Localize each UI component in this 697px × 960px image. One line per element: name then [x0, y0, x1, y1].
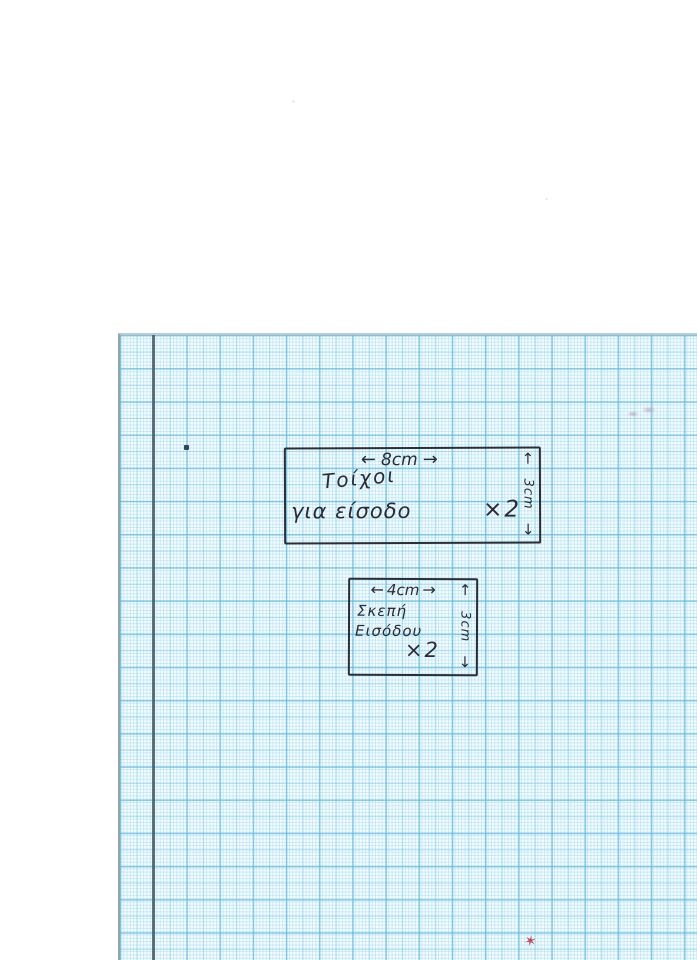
red-asterisk-mark: ✶	[522, 931, 538, 951]
height-dimension: ↑ 3cm ↓	[457, 583, 473, 670]
scan-speck	[545, 198, 548, 200]
sketch-label-line1: Σκεπή	[357, 602, 407, 620]
arrow-up-icon: ↑	[522, 452, 535, 467]
sketch-label-line2: για είσοδο	[291, 499, 411, 523]
scan-speck	[292, 100, 295, 103]
quantity-label: ×2	[405, 638, 440, 662]
width-dimension: ← 4cm →	[350, 581, 456, 599]
arrow-down-icon: ↓	[522, 523, 535, 538]
graph-paper: ✶ ← 8cm → ↑ 3cm ↓ Τοίχοι για είσοδο ×2 ←…	[118, 333, 697, 960]
margin-line	[152, 335, 155, 960]
sketch-rect-roof: ← 4cm → ↑ 3cm ↓ Σκεπή Εισόδου ×2	[348, 578, 478, 676]
arrow-right-icon: →	[423, 451, 438, 469]
height-dimension: ↑ 3cm ↓	[520, 452, 536, 538]
arrow-down-icon: ↓	[459, 655, 472, 670]
width-dimension-label: 4cm	[387, 581, 419, 599]
pink-smudge	[625, 405, 659, 419]
quantity-label: ×2	[483, 497, 521, 523]
height-dimension-label: 3cm	[457, 611, 472, 642]
arrow-up-icon: ↑	[459, 583, 472, 598]
sketch-rect-walls: ← 8cm → ↑ 3cm ↓ Τοίχοι για είσοδο ×2	[284, 447, 541, 545]
ink-dot	[184, 445, 189, 450]
scanned-page: ✶ ← 8cm → ↑ 3cm ↓ Τοίχοι για είσοδο ×2 ←…	[0, 0, 697, 960]
arrow-left-icon: ←	[370, 582, 383, 598]
width-dimension: ← 8cm →	[286, 450, 513, 471]
sketch-label-line1: Τοίχοι	[321, 463, 397, 494]
arrow-right-icon: →	[422, 582, 435, 598]
height-dimension-label: 3cm	[520, 479, 535, 510]
